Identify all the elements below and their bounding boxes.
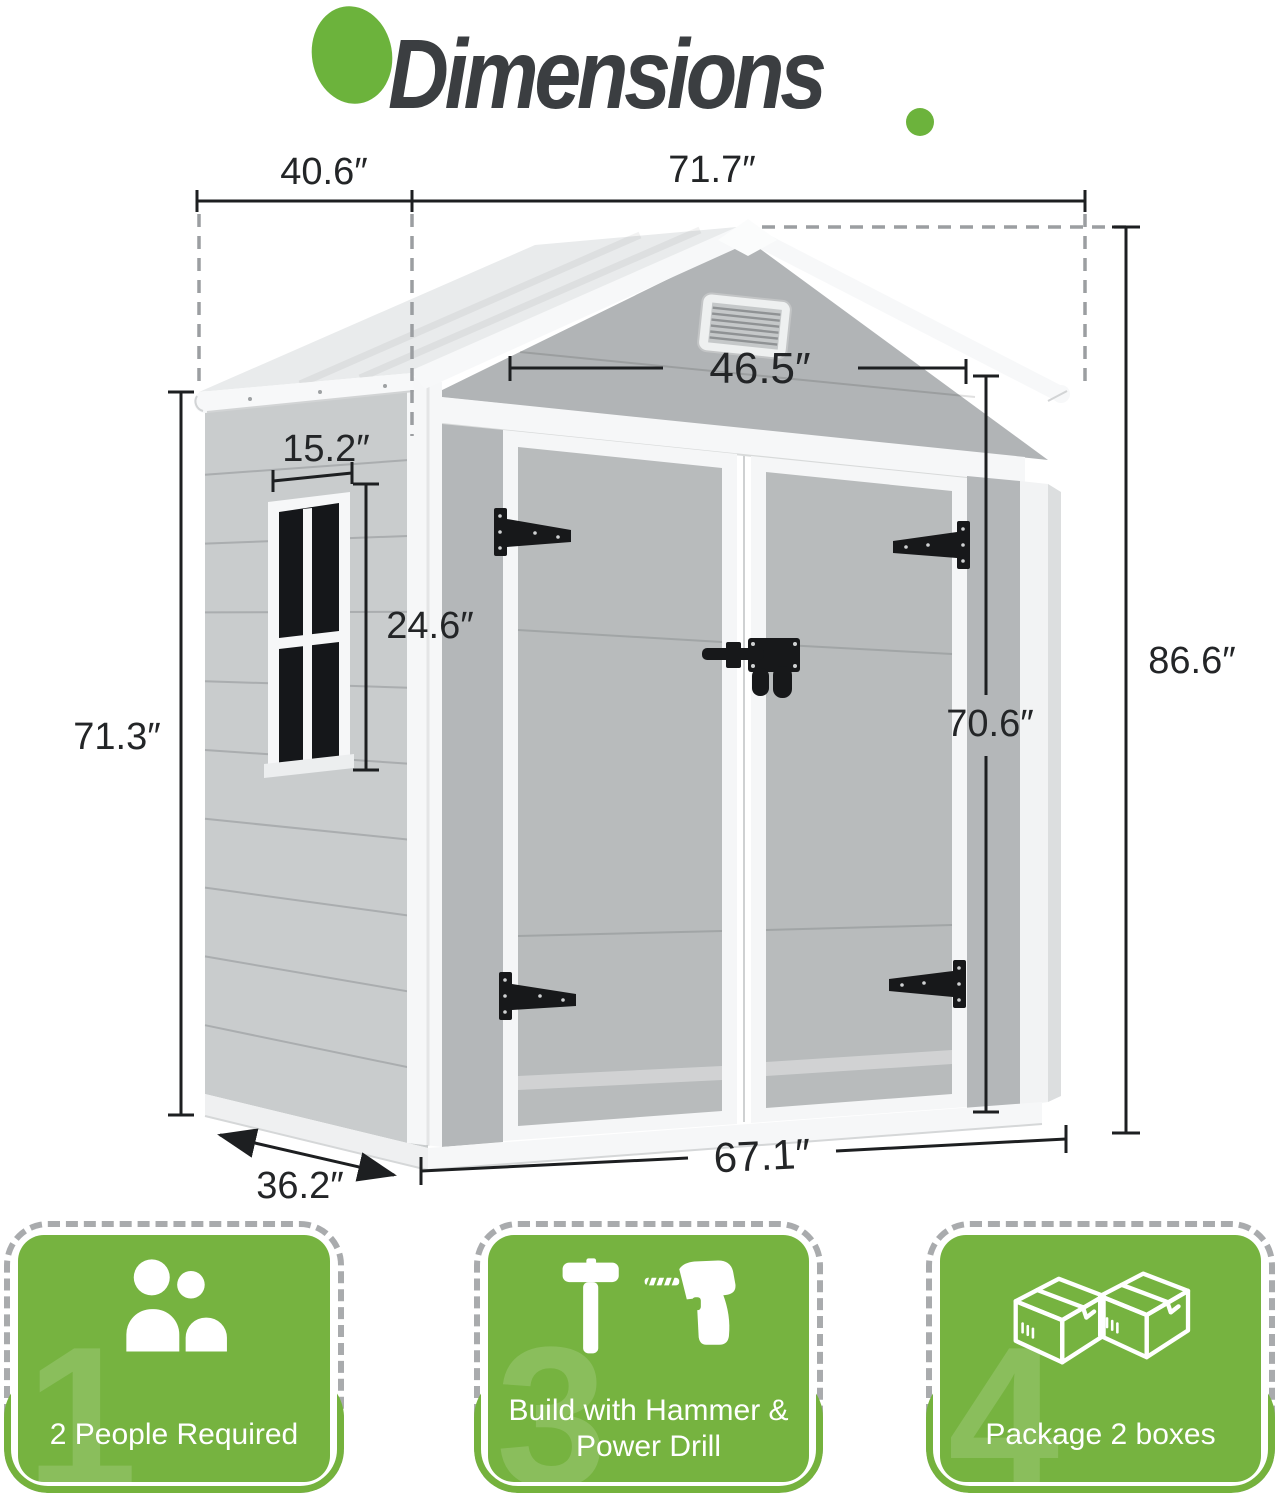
card-label: 2 People Required bbox=[18, 1417, 330, 1454]
dim-total-height-label: 86.6″ bbox=[1148, 642, 1235, 680]
hammer-and-drill-icon bbox=[541, 1253, 757, 1363]
info-card-package: 4 bbox=[926, 1221, 1275, 1493]
dim-door-height-label: 70.6″ bbox=[946, 705, 1033, 743]
box-icon bbox=[1015, 1279, 1103, 1363]
power-drill-icon bbox=[644, 1260, 735, 1344]
dim-window-width-label: 15.2″ bbox=[282, 430, 369, 468]
info-card-tools: 3 Build with bbox=[474, 1221, 823, 1493]
dim-base-width-label: 67.1″ bbox=[713, 1133, 812, 1180]
dim-window-height-label: 24.6″ bbox=[386, 607, 473, 645]
dim-roof-depth-label: 40.6″ bbox=[280, 153, 367, 191]
box-icon bbox=[1100, 1274, 1188, 1358]
side-window bbox=[264, 492, 354, 778]
card-label: Package 2 boxes bbox=[940, 1417, 1261, 1454]
hammer-icon bbox=[562, 1258, 618, 1353]
dim-door-width-label: 46.5″ bbox=[709, 347, 810, 391]
dimensions-infographic: { "title": { "text": "Dimensions" }, "co… bbox=[0, 0, 1277, 1500]
info-card-people: 1 2 People Required bbox=[4, 1221, 344, 1493]
dim-base-depth-label: 36.2″ bbox=[256, 1167, 343, 1205]
card-label: Build with Hammer & Power Drill bbox=[488, 1393, 809, 1466]
side-wall bbox=[205, 382, 428, 1170]
dim-wall-height-label: 71.3″ bbox=[73, 718, 160, 756]
two-people-icon bbox=[120, 1253, 228, 1361]
dim-roof-width-label: 71.7″ bbox=[668, 151, 755, 189]
two-boxes-icon bbox=[989, 1265, 1213, 1377]
